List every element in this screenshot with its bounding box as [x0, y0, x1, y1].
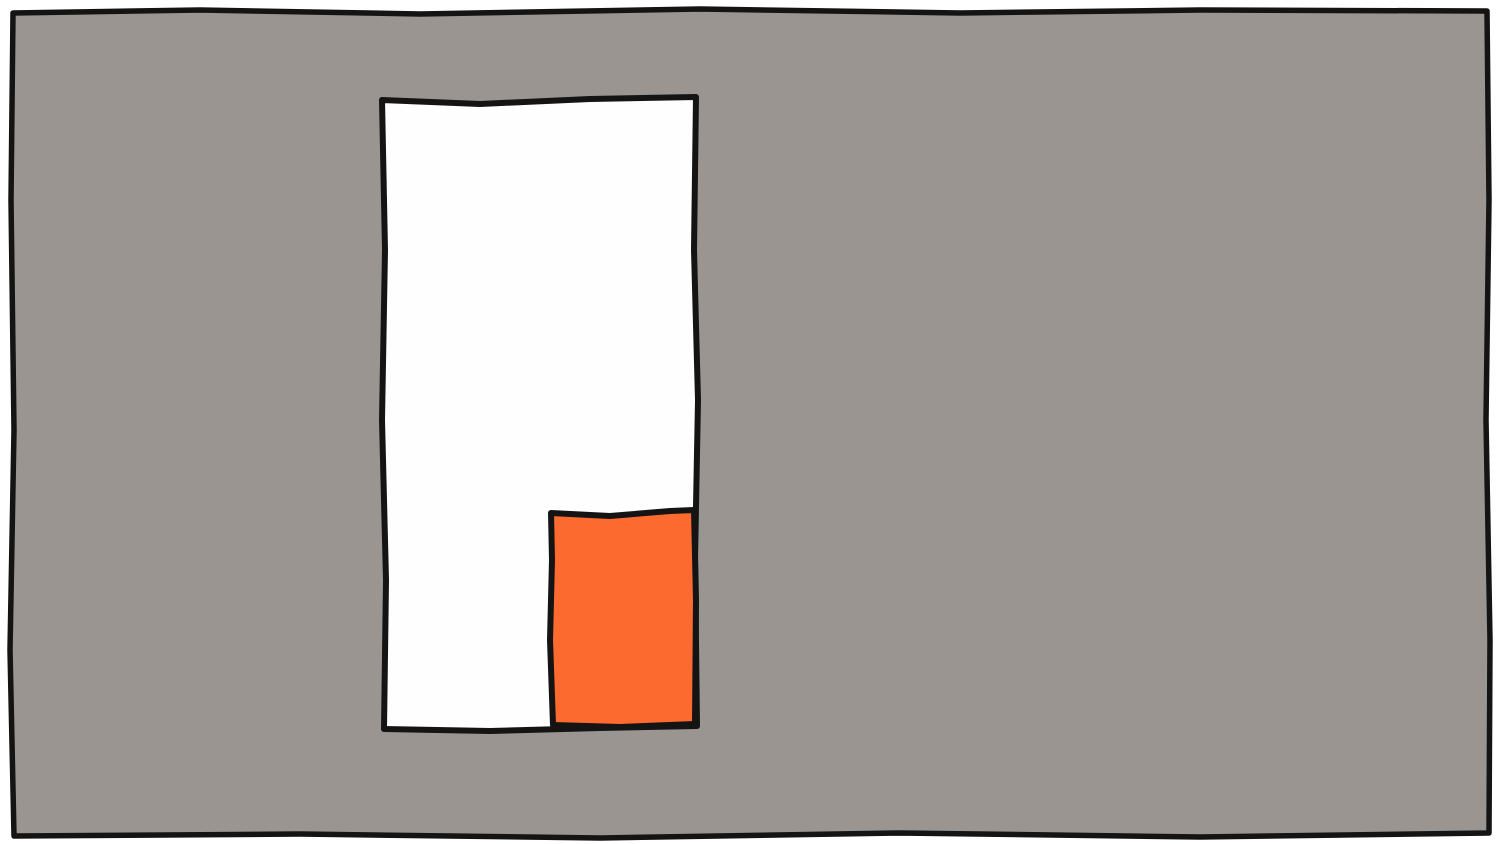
illustration-canvas [0, 0, 1500, 844]
orange-block [550, 510, 696, 727]
gray-wall [10, 9, 1490, 838]
hand-drawn-illustration [0, 0, 1500, 844]
